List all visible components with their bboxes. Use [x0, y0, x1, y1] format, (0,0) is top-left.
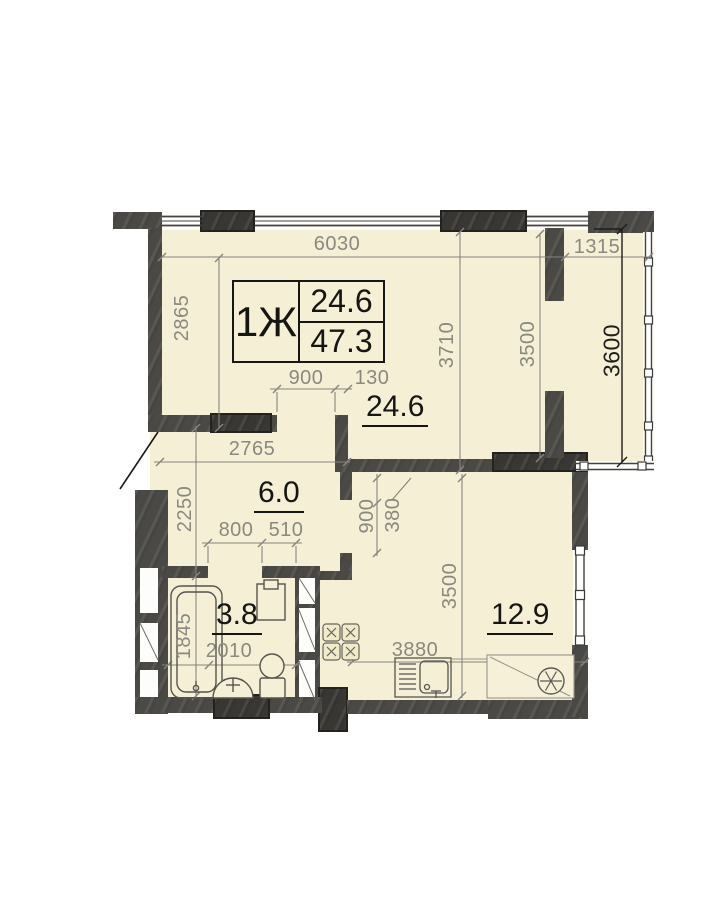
wall-hall-right: [335, 415, 348, 472]
dim-bath-length: 1845: [174, 586, 194, 686]
kitchen-area-label: 12.9: [487, 600, 553, 635]
wall-main-thick: [492, 452, 588, 472]
wall-bottom-protrusion: [213, 694, 270, 719]
wall-hall-top-block: [210, 413, 272, 433]
wall-right-upper: [572, 472, 588, 550]
dim-wall-thickness: 130: [342, 368, 402, 388]
dim-top-width: 6030: [287, 234, 387, 254]
dim-pier-width: 510: [256, 520, 316, 540]
unit-title-box: 1Ж 24.6 47.3: [232, 280, 385, 363]
dim-hall-height: 2250: [175, 459, 195, 559]
wall-top-pier-b: [440, 210, 527, 232]
unit-type-label: 1Ж: [234, 282, 300, 361]
wall-top-left-stub: [113, 212, 162, 229]
wall-top-corner-pier: [588, 211, 654, 233]
dim-living-height-2: 3500: [518, 294, 538, 394]
wall-bath-top-left: [162, 566, 208, 578]
shaft-niche-3: [299, 660, 315, 702]
dim-door-offset: 380: [383, 465, 403, 565]
floor-plan-canvas: 1Ж 24.6 47.3 24.6 6.0 3.8 12.9 6030 1315…: [0, 0, 720, 900]
living-room-area-label: 24.6: [362, 392, 428, 427]
wall-top-pier-a: [200, 210, 255, 232]
wall-right-lower: [572, 645, 588, 717]
wall-kitchen-door-upper: [340, 472, 352, 500]
dim-balcony-height: 3600: [601, 291, 624, 411]
bathroom-area-label: 3.8: [212, 600, 262, 635]
wall-balcony-stub-lower: [545, 391, 564, 458]
unit-total-area: 47.3: [300, 323, 383, 362]
wall-niche-2: [140, 623, 158, 662]
wall-niche-1: [140, 568, 158, 613]
shaft-niche-2: [299, 608, 315, 652]
wall-bath-top-right: [262, 566, 295, 578]
wall-niche-3: [140, 670, 158, 697]
dim-living-height: 3710: [437, 295, 457, 395]
wall-kitchen-connector: [318, 571, 352, 580]
dim-left-height: 2865: [172, 268, 192, 368]
dim-balcony-width: 1315: [557, 237, 637, 257]
wall-bottom-kitchen: [347, 700, 490, 714]
shaft-niche-1: [299, 578, 315, 604]
dim-opening-width: 900: [276, 368, 336, 388]
hall-area-label: 6.0: [254, 478, 304, 513]
unit-living-area: 24.6: [300, 282, 383, 323]
dim-bath-width: 2010: [179, 641, 279, 661]
dim-kitchen-door-height: 900: [357, 466, 377, 566]
wall-left-upper: [148, 228, 162, 432]
dim-kitchen-width: 3880: [365, 640, 465, 660]
dim-kitchen-height: 3500: [440, 536, 460, 636]
wall-bottom-step: [318, 687, 348, 732]
dim-hall-width: 2765: [202, 439, 302, 459]
